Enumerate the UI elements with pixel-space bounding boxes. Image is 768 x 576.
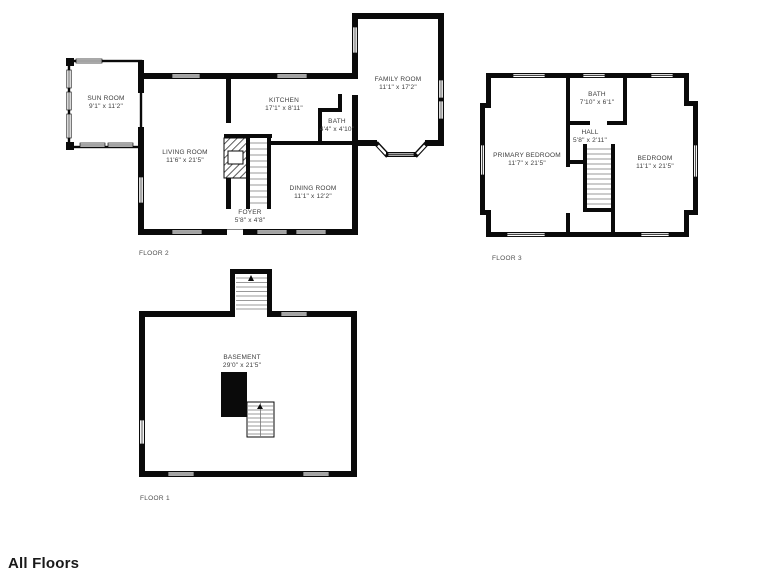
floor2-windows — [139, 27, 443, 235]
floor1-label: FLOOR 1 — [140, 495, 170, 502]
floor1-outer-walls — [139, 311, 357, 477]
floor2-main-walls — [138, 13, 444, 235]
room-label-dining-room: DINING ROOM 11'1" x 12'2" — [290, 185, 337, 200]
floor3-label: FLOOR 3 — [492, 255, 522, 262]
room-label-basement: BASEMENT 29'0" x 21'5" — [223, 354, 261, 369]
floorplan-canvas: SUN ROOM 9'1" x 11'2" LIVING ROOM 11'6" … — [0, 0, 768, 576]
room-label-sun-room: SUN ROOM 9'1" x 11'2" — [87, 95, 124, 110]
floor2-chimney — [224, 138, 248, 178]
floor1-stairs — [247, 402, 274, 437]
room-label-hall: HALL 5'8" x 2'11" — [573, 129, 607, 144]
room-label-kitchen: KITCHEN 17'1" x 8'11" — [265, 97, 303, 112]
floor2-stairs — [246, 138, 271, 209]
floor1-stair-bumpout — [230, 269, 272, 317]
room-label-foyer: FOYER 5'8" x 4'8" — [235, 209, 266, 224]
floor2-label: FLOOR 2 — [139, 250, 169, 257]
room-label-bedroom: BEDROOM 11'1" x 21'5" — [636, 155, 674, 170]
room-label-primary-bedroom: PRIMARY BEDROOM 11'7" x 21'5" — [493, 152, 561, 167]
floor1-plan — [139, 269, 357, 477]
page-title: All Floors — [8, 555, 79, 572]
stair-direction-arrow — [257, 404, 263, 409]
floor1-chimney — [221, 372, 247, 417]
room-label-family-room: FAMILY ROOM 11'1" x 17'2" — [375, 76, 422, 91]
floor2-plan — [66, 13, 444, 235]
room-label-bath-f2: BATH 4'4" x 4'10" — [320, 118, 354, 133]
floor3-stairs — [583, 144, 615, 212]
room-label-living-room: LIVING ROOM 11'6" x 21'5" — [162, 149, 208, 164]
room-label-bath-f3: BATH 7'10" x 6'1" — [580, 91, 614, 106]
